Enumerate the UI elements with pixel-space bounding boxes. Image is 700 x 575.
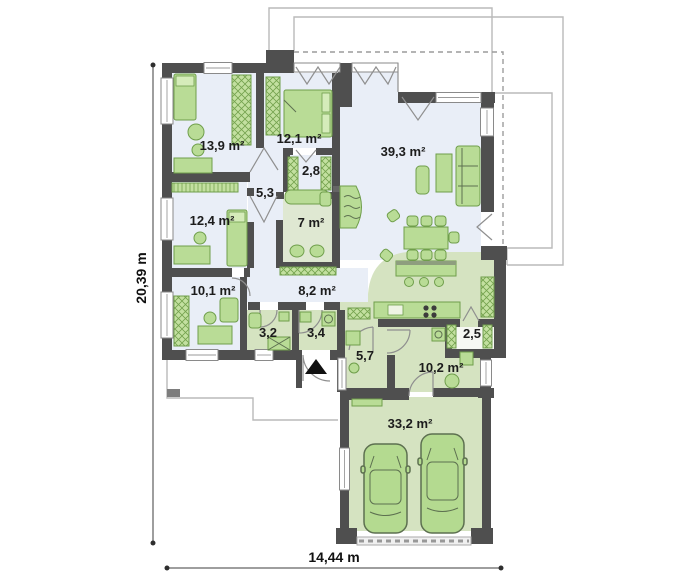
room-label-vestibule: 3,4 bbox=[307, 325, 326, 340]
floor-plan-page: 13,9 m² 12,1 m² 2,8 5,3 7 m² 39,3 m² 12,… bbox=[0, 0, 700, 575]
window bbox=[161, 292, 173, 338]
room-label-bedroom2: 12,1 m² bbox=[277, 131, 322, 146]
room-label-closet: 2,8 bbox=[302, 163, 320, 178]
room-label-entry: 5,7 bbox=[356, 348, 374, 363]
entrance-doormat bbox=[167, 389, 180, 397]
window bbox=[436, 93, 481, 103]
room-label-hall: 8,2 m² bbox=[298, 283, 336, 298]
window bbox=[161, 78, 173, 124]
window bbox=[161, 198, 173, 240]
garage-door bbox=[357, 537, 471, 545]
room-label-bathroom: 7 m² bbox=[298, 215, 325, 230]
hall-shelf bbox=[280, 267, 336, 275]
room-label-utility: 10,2 m² bbox=[419, 360, 464, 375]
room-label-bedroom1: 13,9 m² bbox=[200, 138, 245, 153]
car-right bbox=[418, 434, 467, 533]
room-label-wc: 3,2 bbox=[259, 325, 277, 340]
window bbox=[255, 350, 273, 361]
window-sidelight bbox=[338, 358, 346, 390]
room-label-living: 39,3 m² bbox=[381, 144, 426, 159]
fireplace bbox=[340, 186, 362, 228]
room-label-garage: 33,2 m² bbox=[388, 416, 433, 431]
entrance-arrow-icon bbox=[305, 359, 327, 374]
dimension-height-label: 20,39 m bbox=[133, 252, 149, 303]
room-label-bedroom4: 10,1 m² bbox=[191, 283, 236, 298]
car-left bbox=[361, 444, 410, 533]
window bbox=[481, 360, 492, 386]
room-label-pantry: 2,5 bbox=[463, 326, 481, 341]
window bbox=[340, 448, 350, 490]
dimension-width-label: 14,44 m bbox=[308, 549, 359, 565]
window bbox=[204, 63, 232, 74]
window bbox=[186, 350, 218, 361]
chimney-block bbox=[266, 50, 294, 73]
room-label-corridor: 5,3 bbox=[256, 185, 274, 200]
room-label-bedroom3: 12,4 m² bbox=[190, 213, 235, 228]
floor-plan-canvas: 13,9 m² 12,1 m² 2,8 5,3 7 m² 39,3 m² 12,… bbox=[0, 0, 700, 575]
window bbox=[481, 108, 494, 136]
